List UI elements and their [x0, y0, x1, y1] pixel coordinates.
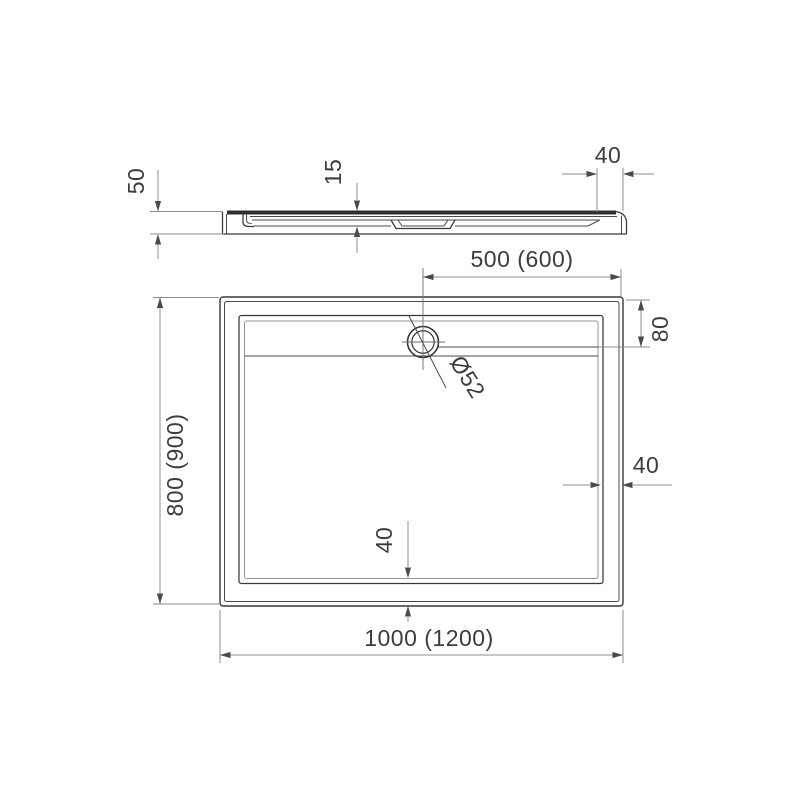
dimension-inner-depth-15: 15: [320, 159, 360, 253]
arrowhead: [638, 337, 644, 348]
arrowhead: [638, 300, 644, 311]
drain-recess-profile-inner: [398, 220, 448, 226]
arrowhead: [405, 568, 411, 579]
technical-drawing-svg: 50 15 40 Ø52: [0, 0, 800, 800]
dim-label-rim-width-bottom: 40: [371, 527, 397, 554]
arrowhead: [623, 171, 634, 177]
arrowhead: [354, 201, 360, 212]
dimension-depth-800: 800 (900): [153, 298, 219, 605]
plan-view: Ø52: [220, 268, 623, 606]
arrowhead: [423, 274, 434, 280]
dimension-rim-width-40-side: 40: [562, 142, 654, 212]
arrowhead: [155, 234, 161, 245]
arrowhead: [611, 274, 622, 280]
arrowhead: [155, 201, 161, 212]
dim-label-shelf-depth: 80: [647, 316, 673, 343]
arrowhead: [405, 606, 411, 617]
dimension-drain-offset-500: 500 (600): [423, 246, 621, 296]
side-view-dimensions: 50 15 40: [123, 142, 654, 259]
dimension-height-50: 50: [123, 168, 224, 259]
arrowhead: [157, 594, 163, 605]
arrowhead: [591, 482, 602, 488]
tray-floor-right: [455, 221, 599, 227]
dim-label-rim-width-right: 40: [633, 452, 660, 478]
dim-label-width: 1000 (1200): [364, 625, 494, 651]
dim-label-rim-width-side: 40: [595, 142, 622, 168]
tray-left-lip-inner: [247, 214, 252, 224]
dim-label-drain-diameter: Ø52: [445, 351, 491, 403]
tray-right-edge: [615, 212, 627, 235]
dim-label-depth: 800 (900): [162, 414, 188, 517]
arrowhead: [354, 227, 360, 238]
arrowhead: [587, 171, 598, 177]
dimension-rim-width-40-bottom: 40: [371, 521, 411, 622]
dim-label-height: 50: [123, 168, 149, 195]
drain: Ø52: [402, 268, 491, 403]
drawing-sheet: 50 15 40 Ø52: [0, 0, 800, 800]
inner-rim-inner-line: [245, 321, 599, 579]
outer-edge-rect: [220, 297, 623, 606]
dim-label-drain-offset: 500 (600): [471, 246, 574, 272]
dim-label-inner-depth: 15: [320, 159, 346, 186]
side-view: [222, 212, 627, 235]
dimension-shelf-depth-80: 80: [598, 300, 673, 347]
dimension-rim-width-40-right: 40: [563, 452, 672, 488]
plan-view-dimensions: 500 (600) 80 40 40 800 (900): [153, 246, 673, 663]
arrowhead: [220, 652, 231, 658]
dimension-width-1000: 1000 (1200): [220, 610, 623, 663]
arrowhead: [157, 298, 163, 309]
arrowhead: [613, 652, 624, 658]
